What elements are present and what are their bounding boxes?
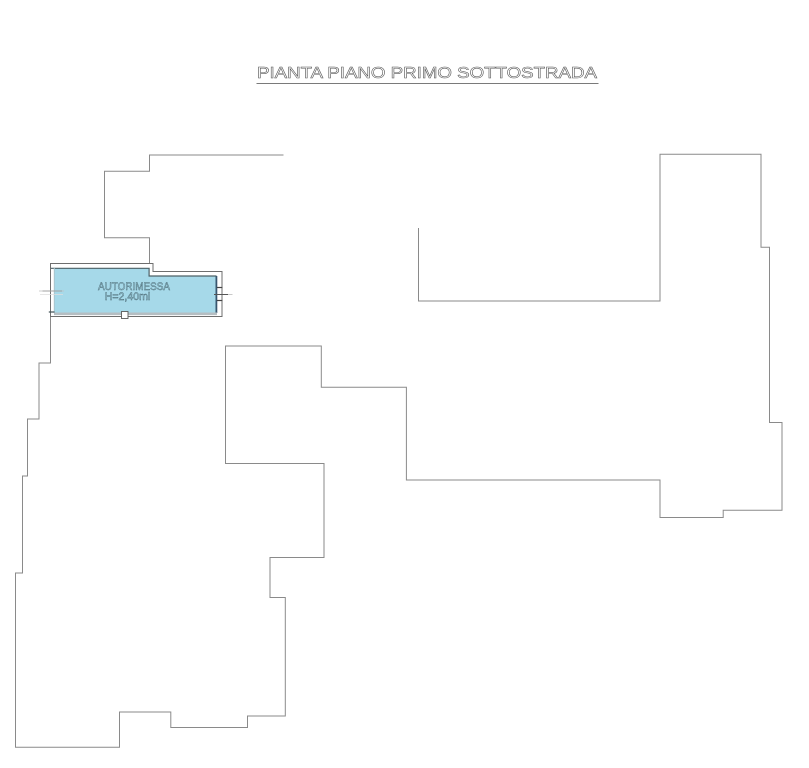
svg-text:PIANTA PIANO PRIMO SOTTOSTRADA: PIANTA PIANO PRIMO SOTTOSTRADA (257, 65, 597, 82)
svg-text:H=2,40ml: H=2,40ml (105, 291, 151, 303)
